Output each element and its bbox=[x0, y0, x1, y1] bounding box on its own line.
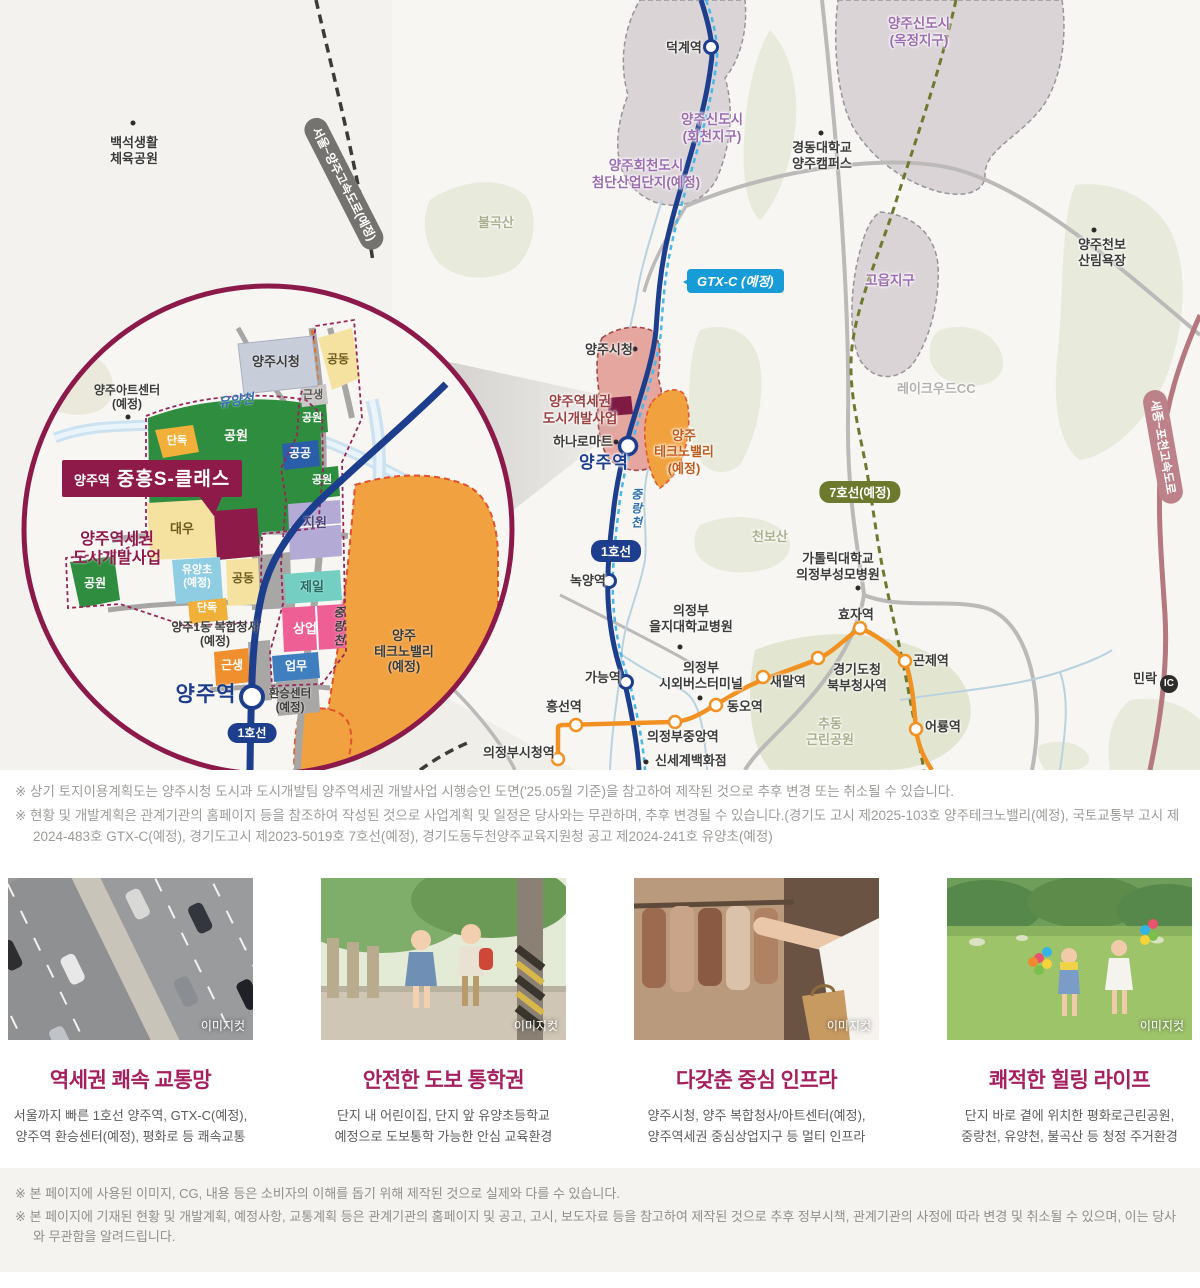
place-baekseok-park: 백석생활 체육공원 bbox=[110, 135, 158, 168]
card-body: 양주시청, 양주 복합청사/아트센터(예정), 양주역세권 중심상업지구 등 멀… bbox=[634, 1106, 879, 1148]
station-uijeongbu-jungang: 의정부중앙역 bbox=[647, 729, 719, 745]
parcel-gongwon-right: 공원 bbox=[312, 474, 332, 487]
image-cut-tag: 이미지컷 bbox=[201, 1017, 245, 1034]
river-jungnangcheon: 중랑천 bbox=[628, 488, 643, 530]
station-ganeung: 가능역 bbox=[585, 670, 621, 686]
image-cut-tag: 이미지컷 bbox=[514, 1017, 558, 1034]
inset-transfer-center: 환승센터 (예정) bbox=[269, 688, 311, 716]
parcel-geunsaeng-2: 근생 bbox=[221, 658, 243, 672]
place-dev-project: 양주역세권 도시개발사업 bbox=[543, 394, 618, 428]
region-okjeong: 양주신도시 (옥정지구) bbox=[888, 16, 950, 50]
millak-label: 민락 bbox=[1133, 671, 1157, 686]
millak-ic: 민락IC bbox=[1133, 671, 1178, 693]
parcel-gongwon-main: 공원 bbox=[224, 428, 248, 444]
page-disclaimer-2: ※ 본 페이지에 기재된 현황 및 개발계획, 예정사항, 교통계획 등은 관계… bbox=[15, 1207, 1185, 1247]
feature-cards: 이미지컷 역세권 쾌속 교통망 서울까지 빠른 1호선 양주역, GTX-C(예… bbox=[0, 878, 1200, 1148]
parcel-jeil: 제일 bbox=[300, 579, 324, 595]
card-title: 쾌적한 힐링 라이프 bbox=[947, 1064, 1192, 1094]
place-cheonbosan: 천보산 bbox=[752, 529, 788, 545]
card-transport: 이미지컷 역세권 쾌속 교통망 서울까지 빠른 1호선 양주역, GTX-C(예… bbox=[8, 878, 253, 1148]
site-label-box: 양주역 중흥S-클래스 bbox=[62, 460, 242, 497]
school-walk-photo: 이미지컷 bbox=[321, 878, 566, 1040]
parcel-eopmu: 업무 bbox=[285, 659, 307, 673]
card-body: 단지 내 어린이집, 단지 앞 유양초등학교 예정으로 도보통학 가능한 안심 … bbox=[321, 1106, 566, 1148]
promo-page: 덕계역 양주신도시 (옥정지구) 양주신도시 (회천지구) 양주회천도시 첨단산… bbox=[0, 0, 1200, 1288]
inset-jungnangcheon: 중랑천 bbox=[331, 606, 345, 648]
place-technovalley: 양주 테크노밸리 (예정) bbox=[654, 428, 714, 477]
place-chudong-park: 추동 근린공원 bbox=[806, 716, 854, 749]
parcel-gongdong-1: 공동 bbox=[327, 352, 349, 366]
map-disclaimer-1: ※ 상기 토지이용계획도는 양주시청 도시과 도시개발팀 양주역세권 개발사업 … bbox=[15, 782, 1185, 803]
location-map: 덕계역 양주신도시 (옥정지구) 양주신도시 (회천지구) 양주회천도시 첨단산… bbox=[0, 0, 1200, 770]
inset-technovalley: 양주 테크노밸리 (예정) bbox=[374, 628, 434, 675]
card-body: 단지 바로 곁에 위치한 평화로근린공원, 중랑천, 유양천, 불곡산 등 청정… bbox=[947, 1106, 1192, 1148]
station-hyoja: 효자역 bbox=[838, 607, 874, 623]
parcel-yuyang-elem: 유양초 (예정) bbox=[182, 564, 212, 590]
parcel-gongwon-left: 공원 bbox=[84, 576, 106, 590]
place-bulgoksan: 불곡산 bbox=[478, 215, 514, 231]
station-yangju-main: 양주역 bbox=[579, 452, 629, 473]
place-eulji-hospital: 의정부 을지대학교병원 bbox=[649, 603, 733, 636]
place-catholic-hospital: 가톨릭대학교 의정부성모병원 bbox=[796, 551, 880, 584]
place-shinsegae: 신세계백화점 bbox=[655, 753, 727, 769]
place-lakewood-cc: 레이크우드CC bbox=[897, 381, 976, 397]
card-title: 역세권 쾌속 교통망 bbox=[8, 1064, 253, 1094]
card-body: 서울까지 빠른 1호선 양주역, GTX-C(예정), 양주역 환승센터(예정)… bbox=[8, 1106, 253, 1148]
station-nokyang: 녹양역 bbox=[570, 573, 606, 589]
line1-badge: 1호선 bbox=[591, 540, 641, 562]
station-heungseon: 흥선역 bbox=[546, 699, 582, 715]
region-hoecheon-industrial: 양주회천도시 첨단산업단지(예정) bbox=[592, 158, 700, 192]
map-disclaimer-2: ※ 현황 및 개발계획은 관계기관의 홈페이지 등을 참조하여 작성된 것으로 … bbox=[15, 806, 1185, 848]
place-hanaro-mart: 하나로마트 bbox=[553, 434, 613, 450]
card-title: 다갖춘 중심 인프라 bbox=[634, 1064, 879, 1094]
card-school: 이미지컷 안전한 도보 통학권 단지 내 어린이집, 단지 앞 유양초등학교 예… bbox=[321, 878, 566, 1148]
parcel-dandok-1: 단독 bbox=[167, 435, 187, 448]
shopping-art bbox=[634, 878, 879, 1040]
map-artwork bbox=[0, 0, 1200, 770]
parcel-dandok-2: 단독 bbox=[197, 602, 217, 615]
highway-art bbox=[8, 878, 253, 1040]
highway-photo: 이미지컷 bbox=[8, 878, 253, 1040]
park-art bbox=[947, 878, 1192, 1040]
region-hoecheon: 양주신도시 (회천지구) bbox=[681, 112, 743, 146]
card-healing: 이미지컷 쾌적한 힐링 라이프 단지 바로 곁에 위치한 평화로근린공원, 중랑… bbox=[947, 878, 1192, 1148]
parcel-daewoo: 대우 bbox=[170, 521, 194, 537]
image-cut-tag: 이미지컷 bbox=[1140, 1017, 1184, 1034]
inset-artcenter: 양주아트센터 (예정) bbox=[94, 383, 160, 412]
station-uijeongbu-cityhall: 의정부시청역 bbox=[483, 745, 555, 761]
card-infra: 이미지컷 다갖춘 중심 인프라 양주시청, 양주 복합청사/아트센터(예정), … bbox=[634, 878, 879, 1148]
parcel-gonggong: 공공 bbox=[289, 446, 311, 460]
place-yangju-cityhall: 양주시청 bbox=[585, 342, 633, 358]
site-label-name: 중흥S-클래스 bbox=[117, 464, 230, 491]
region-goeup: 고읍지구 bbox=[865, 273, 915, 290]
line7-badge: 7호선(예정) bbox=[819, 481, 900, 503]
school-walk-art bbox=[321, 878, 566, 1040]
page-disclaimer-1: ※ 본 페이지에 사용된 이미지, CG, 내용 등은 소비자의 이해를 돕기 … bbox=[15, 1184, 1185, 1204]
page-disclaimers: ※ 본 페이지에 사용된 이미지, CG, 내용 등은 소비자의 이해를 돕기 … bbox=[0, 1168, 1200, 1272]
inset-yangju-station: 양주역 bbox=[176, 682, 237, 707]
parcel-sangeop: 상업 bbox=[293, 621, 317, 637]
station-gyeonggi-office: 경기도청 북부청사역 bbox=[827, 662, 887, 695]
station-deokgye: 덕계역 bbox=[666, 40, 702, 56]
parcel-geunsaeng-1: 근생 bbox=[303, 389, 323, 402]
station-eoryong: 어룡역 bbox=[925, 719, 961, 735]
station-gonje: 곤제역 bbox=[913, 653, 949, 669]
place-kyungdong-univ: 경동대학교 양주캠퍼스 bbox=[792, 140, 852, 173]
park-photo: 이미지컷 bbox=[947, 878, 1192, 1040]
station-dongo: 동오역 bbox=[727, 699, 763, 715]
shopping-photo: 이미지컷 bbox=[634, 878, 879, 1040]
card-title: 안전한 도보 통학권 bbox=[321, 1064, 566, 1094]
gtx-badge: GTX-C (예정) bbox=[687, 269, 784, 293]
place-cheonbo-forest: 양주천보 산림욕장 bbox=[1078, 237, 1126, 270]
site-label-prefix: 양주역 bbox=[74, 470, 110, 489]
station-saemal: 새말역 bbox=[770, 674, 806, 690]
parcel-gongdong-2: 공동 bbox=[232, 571, 254, 585]
map-disclaimers: ※ 상기 토지이용계획도는 양주시청 도시과 도시개발팀 양주역세권 개발사업 … bbox=[0, 770, 1200, 863]
parcel-gongwon-top: 공원 bbox=[302, 412, 322, 425]
inset-line1-badge: 1호선 bbox=[228, 723, 277, 743]
inset-cityhall: 양주시청 bbox=[252, 354, 300, 370]
inset-dev-project: 양주역세권 도시개발사업 bbox=[73, 530, 161, 568]
parcel-jiwon: 지원 bbox=[303, 515, 327, 531]
ic-icon: IC bbox=[1160, 675, 1178, 693]
image-cut-tag: 이미지컷 bbox=[827, 1017, 871, 1034]
place-bus-terminal: 의정부 시외버스터미널 bbox=[659, 660, 743, 693]
inset-complex-hall: 양주1동 복합청사 (예정) bbox=[171, 620, 258, 649]
